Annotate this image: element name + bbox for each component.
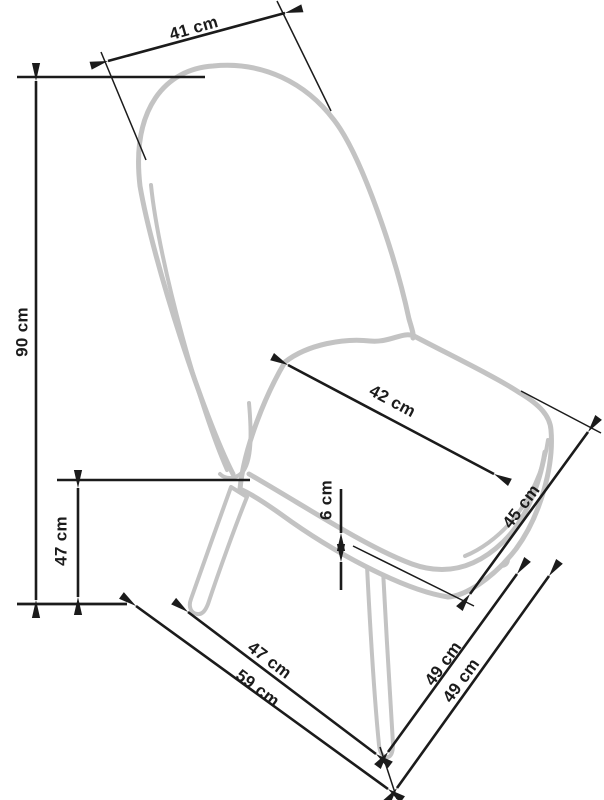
- dimension-backrest-width: 41 cm: [101, 1, 331, 160]
- dimension-overall-height: 90 cm: [12, 77, 205, 604]
- chair-dimension-diagram: 41 cm90 cm47 cm42 cm6 cm45 cm47 cm59 cm4…: [0, 0, 604, 800]
- dimension-base-width: 59 cm: [136, 606, 388, 789]
- dimension-arrow-line: [397, 576, 549, 788]
- dimension-label: 41 cm: [167, 12, 220, 44]
- dimension-side-leg-span: 49 cm: [388, 574, 517, 752]
- chair-front-left-leg: [190, 487, 247, 614]
- dimension-label: 6 cm: [316, 480, 335, 520]
- chair-backrest-rolled-edge: [151, 185, 227, 470]
- dimension-label: 90 cm: [12, 307, 31, 357]
- extension-line: [101, 52, 146, 160]
- dimension-base-depth: 49 cm: [380, 576, 549, 799]
- chair-front-right-leg: [367, 566, 393, 757]
- dimension-front-leg-span: 47 cm: [188, 612, 376, 754]
- dimension-label: 47 cm: [51, 516, 70, 566]
- extension-line: [277, 1, 331, 111]
- dimension-arrow-line: [188, 612, 376, 754]
- diagram-canvas: 41 cm90 cm47 cm42 cm6 cm45 cm47 cm59 cm4…: [0, 0, 604, 800]
